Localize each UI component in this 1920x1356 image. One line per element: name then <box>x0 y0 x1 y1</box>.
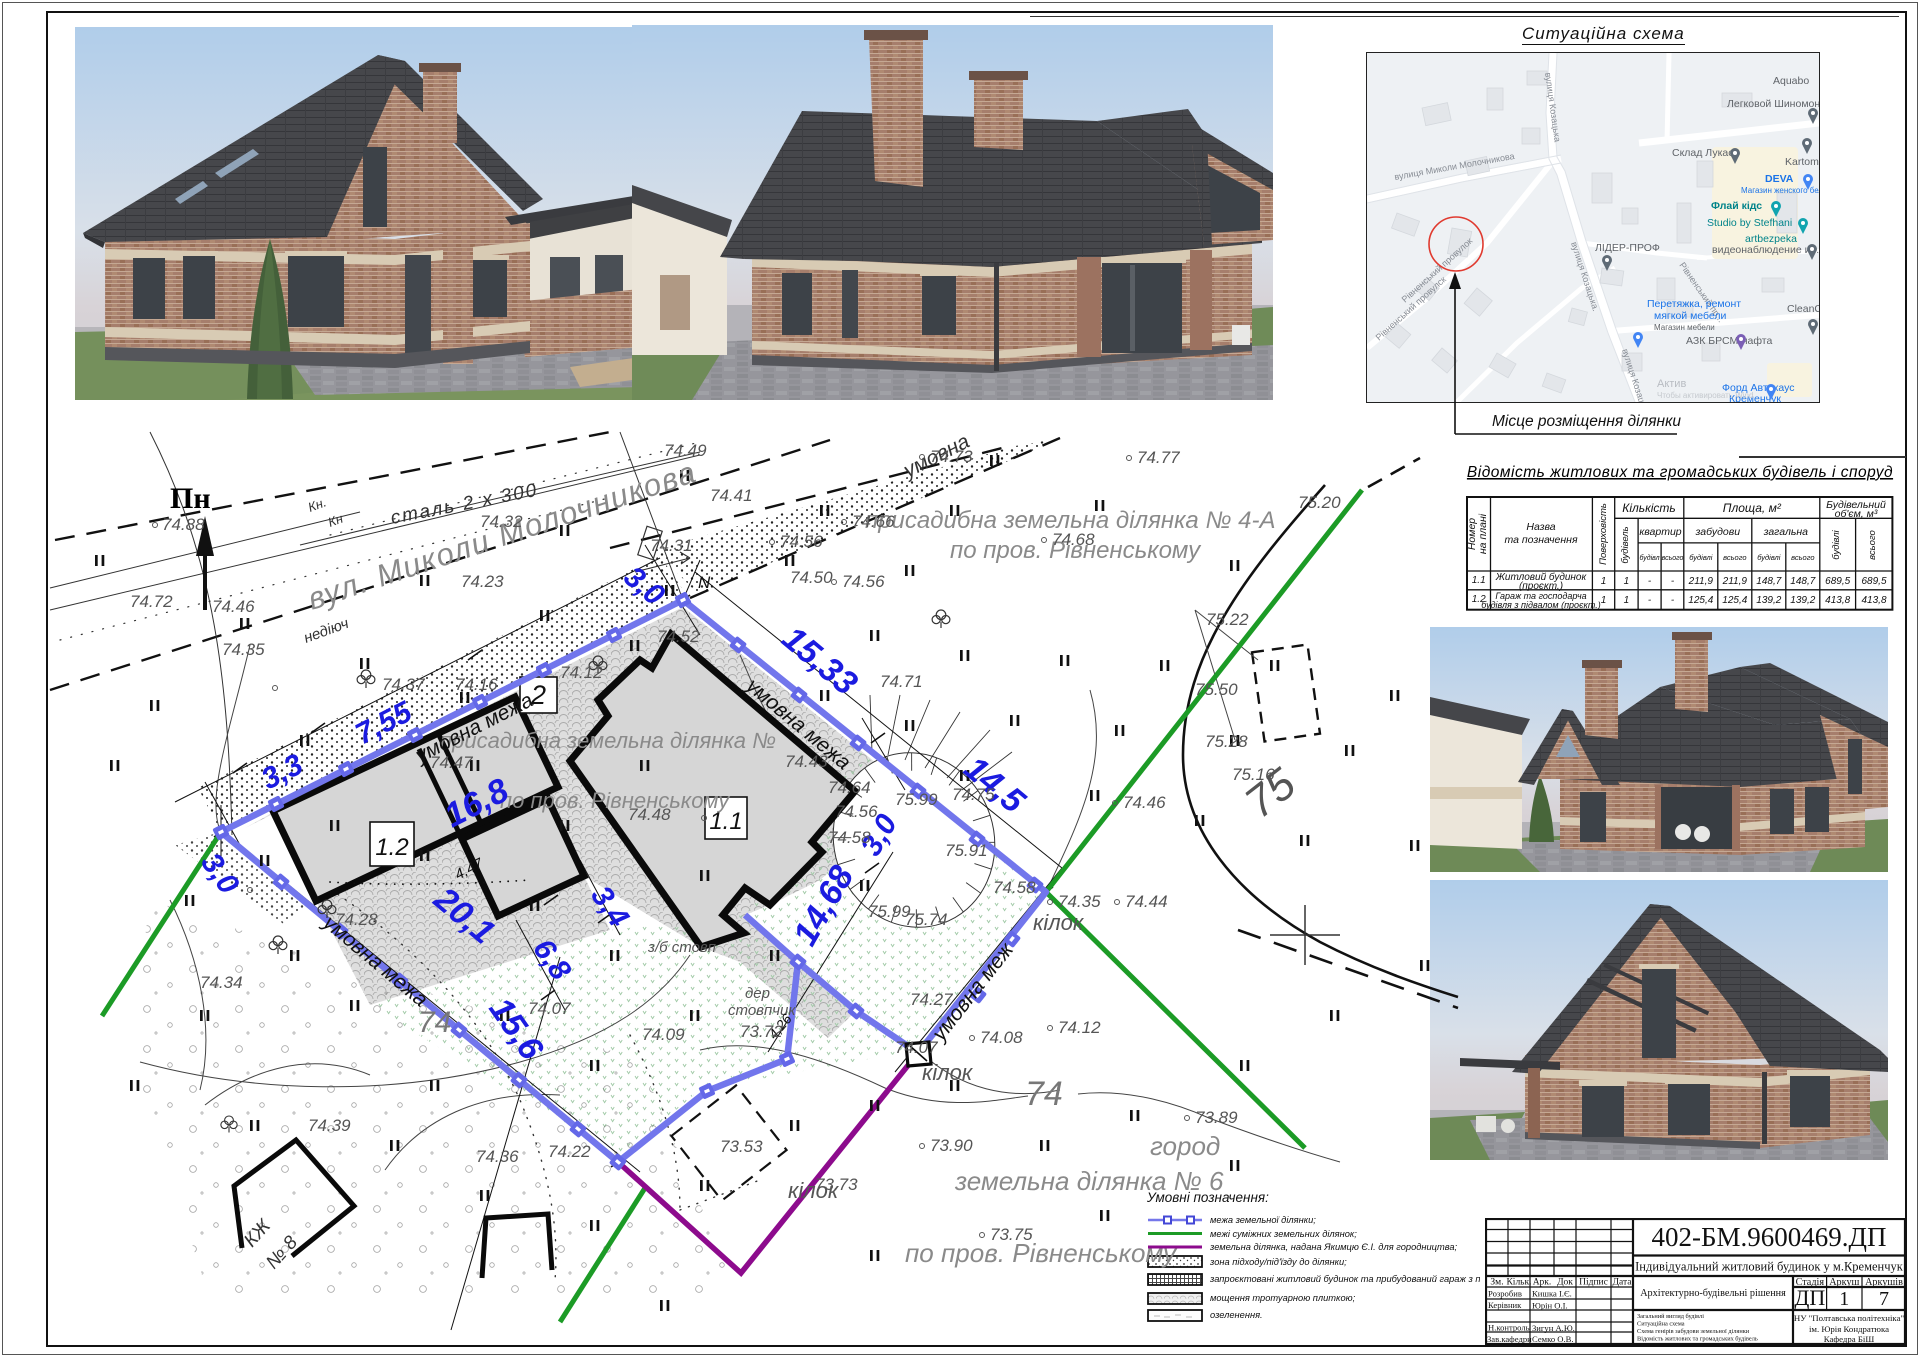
svg-text:74.34: 74.34 <box>200 973 243 992</box>
svg-text:видеонаблюдение и...: видеонаблюдение и... <box>1712 244 1819 256</box>
svg-text:Назва: Назва <box>1526 521 1555 533</box>
svg-text:73.75: 73.75 <box>990 1225 1033 1244</box>
svg-text:73.72: 73.72 <box>740 1022 783 1041</box>
svg-text:Загальний вигляд будівлі: Загальний вигляд будівлі <box>1637 1313 1704 1320</box>
svg-text:ЛІДЕР-ПРОФ: ЛІДЕР-ПРОФ <box>1595 242 1660 254</box>
svg-text:Відомість житлових та громадсь: Відомість житлових та громадських будіве… <box>1467 464 1893 481</box>
svg-text:148,7: 148,7 <box>1790 576 1815 587</box>
svg-text:74.41: 74.41 <box>710 486 753 505</box>
svg-text:211,9: 211,9 <box>1722 576 1748 587</box>
svg-text:НУ "Полтавська політехніка": НУ "Полтавська політехніка" <box>1794 1313 1905 1323</box>
svg-text:DEVA: DEVA <box>1765 173 1794 185</box>
svg-text:74.50: 74.50 <box>790 568 833 587</box>
svg-text:74.46: 74.46 <box>1123 793 1166 812</box>
svg-text:1: 1 <box>1624 576 1630 587</box>
svg-text:74.37: 74.37 <box>382 675 425 694</box>
svg-text:74.12: 74.12 <box>560 663 603 682</box>
svg-text:75.50: 75.50 <box>1195 680 1238 699</box>
svg-text:75.99: 75.99 <box>895 790 938 809</box>
svg-text:689,5: 689,5 <box>1825 576 1850 587</box>
svg-text:всього: всього <box>1867 530 1878 560</box>
svg-text:75.16: 75.16 <box>1232 765 1275 784</box>
svg-text:73.73: 73.73 <box>815 1175 858 1194</box>
svg-text:Семко О.В.: Семко О.В. <box>1532 1334 1574 1344</box>
svg-text:74.75: 74.75 <box>952 785 995 804</box>
svg-text:Кафедра БіШ: Кафедра БіШ <box>1824 1334 1875 1344</box>
svg-text:АЗК БРСМ-нафта: АЗК БРСМ-нафта <box>1686 335 1772 347</box>
svg-text:74.58: 74.58 <box>828 828 871 847</box>
svg-text:та позначення: та позначення <box>1504 534 1578 546</box>
svg-text:Н.контроль: Н.контроль <box>1488 1323 1530 1333</box>
svg-text:недіюч: недіюч <box>302 615 352 647</box>
svg-text:74.43: 74.43 <box>785 752 828 771</box>
svg-text:74.16: 74.16 <box>455 675 498 694</box>
svg-text:139,2: 139,2 <box>1756 595 1781 606</box>
svg-text:будівлі: будівлі <box>1831 529 1842 559</box>
svg-text:74.56: 74.56 <box>835 802 878 821</box>
svg-text:413,8: 413,8 <box>1825 595 1850 606</box>
svg-text:кілок: кілок <box>1033 910 1085 935</box>
svg-text:74.72: 74.72 <box>130 592 173 611</box>
svg-text:Поверховість: Поверховість <box>1598 503 1609 565</box>
svg-text:город: город <box>1150 1131 1220 1161</box>
svg-text:74.77: 74.77 <box>1137 448 1180 467</box>
svg-text:125,4: 125,4 <box>1722 595 1747 606</box>
svg-text:74.49: 74.49 <box>664 441 707 460</box>
svg-text:74.09: 74.09 <box>642 1025 685 1044</box>
svg-text:74: 74 <box>1025 1075 1063 1113</box>
svg-text:Архітектурно-будівельні рішенн: Архітектурно-будівельні рішення <box>1640 1288 1786 1299</box>
svg-text:74.66: 74.66 <box>852 512 895 531</box>
svg-text:1: 1 <box>1601 595 1607 606</box>
svg-text:75.74: 75.74 <box>905 910 948 929</box>
svg-text:74.08: 74.08 <box>980 1028 1023 1047</box>
svg-text:Підпис: Підпис <box>1579 1278 1608 1288</box>
svg-text:Кількість: Кількість <box>1622 501 1675 515</box>
svg-text:Зм.: Зм. <box>1490 1278 1503 1288</box>
svg-text:15,33: 15,33 <box>775 619 865 703</box>
svg-text:Ситуаційна схема: Ситуаційна схема <box>1637 1321 1685 1328</box>
svg-text:квартир: квартир <box>1639 526 1681 538</box>
svg-text:74.47: 74.47 <box>430 753 473 772</box>
svg-text:Studio by Stefhani: Studio by Stefhani <box>1707 217 1792 229</box>
svg-text:1: 1 <box>1839 1288 1849 1310</box>
svg-text:402-БМ.9600469.ДП: 402-БМ.9600469.ДП <box>1652 1222 1887 1252</box>
svg-text:будівля з підвалом (проєкт.): будівля з підвалом (проєкт.) <box>1481 600 1601 610</box>
svg-text:Місце розміщення ділянки: Місце розміщення ділянки <box>1492 413 1681 430</box>
svg-text:75.22: 75.22 <box>1206 610 1249 629</box>
svg-text:Індивідуальний житловий будино: Індивідуальний житловий будинок у м.Крем… <box>1635 1260 1904 1274</box>
svg-text:всього: всього <box>1662 555 1684 562</box>
svg-text:Зав.кафедри: Зав.кафедри <box>1487 1334 1532 1344</box>
svg-text:74.56: 74.56 <box>842 572 885 591</box>
svg-text:74.56: 74.56 <box>780 532 823 551</box>
svg-text:148,7: 148,7 <box>1756 576 1781 587</box>
svg-text:Флай кідс: Флай кідс <box>1711 200 1762 212</box>
svg-text:73.90: 73.90 <box>930 1136 973 1155</box>
svg-text:74: 74 <box>418 1006 451 1039</box>
svg-text:кілок: кілок <box>922 1060 974 1085</box>
svg-text:74.27: 74.27 <box>910 990 953 1009</box>
svg-text:73.89: 73.89 <box>1195 1108 1238 1127</box>
svg-text:74.07: 74.07 <box>528 999 571 1018</box>
svg-text:Кишка І.Є.: Кишка І.Є. <box>1532 1289 1572 1299</box>
svg-text:будівл: будівл <box>1639 554 1659 562</box>
svg-text:Схема генірів забудови земельн: Схема генірів забудови земельної ділянки <box>1637 1328 1750 1335</box>
svg-text:Легковой Шиномонт: Легковой Шиномонт <box>1727 98 1820 110</box>
svg-text:ДП: ДП <box>1794 1285 1825 1310</box>
svg-text:ім. Юрія Кондратюка: ім. Юрія Кондратюка <box>1809 1324 1889 1334</box>
svg-text:з/б стовп: з/б стовп <box>647 939 716 956</box>
svg-text:1: 1 <box>1601 576 1607 587</box>
svg-text:75.28: 75.28 <box>1205 732 1248 751</box>
svg-text:Кн: Кн <box>326 511 345 530</box>
svg-text:Арк.: Арк. <box>1533 1278 1552 1288</box>
svg-text:Зигун А.Ю.: Зигун А.Ю. <box>1532 1323 1575 1333</box>
svg-text:74.07: 74.07 <box>895 1038 938 1057</box>
svg-text:1.1: 1.1 <box>1472 575 1486 586</box>
svg-text:74.48: 74.48 <box>628 805 671 824</box>
svg-text:74.36: 74.36 <box>476 1147 519 1166</box>
svg-text:Розробив: Розробив <box>1488 1289 1522 1299</box>
svg-text:Аркушів: Аркушів <box>1865 1277 1903 1288</box>
svg-text:-: - <box>1648 595 1652 606</box>
svg-text:74.88: 74.88 <box>162 515 205 534</box>
svg-text:125,4: 125,4 <box>1688 595 1713 606</box>
svg-text:Аркуш: Аркуш <box>1829 1277 1859 1288</box>
svg-text:дер: дер <box>745 985 770 1002</box>
svg-text:413,8: 413,8 <box>1861 595 1886 606</box>
svg-text:Дата: Дата <box>1613 1278 1633 1288</box>
svg-text:на плані: на плані <box>1477 513 1489 554</box>
svg-text:74.31: 74.31 <box>650 536 693 555</box>
svg-text:75.20: 75.20 <box>1298 493 1341 512</box>
svg-text:будівлі: будівлі <box>1689 553 1713 562</box>
svg-text:по пров. Рівненському: по пров. Рівненському <box>905 1238 1178 1268</box>
svg-text:Aquabo: Aquabo <box>1773 75 1809 87</box>
svg-text:загальна: загальна <box>1763 526 1809 538</box>
svg-text:Кн.: Кн. <box>306 494 328 514</box>
svg-text:73.53: 73.53 <box>720 1137 763 1156</box>
svg-text:211,9: 211,9 <box>1688 576 1714 587</box>
svg-text:74.58: 74.58 <box>993 878 1036 897</box>
svg-text:Склад Лукас: Склад Лукас <box>1672 147 1733 159</box>
svg-text:74.52: 74.52 <box>657 627 700 646</box>
svg-text:74.46: 74.46 <box>212 597 255 616</box>
svg-text:забудови: забудови <box>1695 526 1741 538</box>
svg-text:-: - <box>1671 576 1675 587</box>
svg-text:будівлі: будівлі <box>1757 553 1781 562</box>
svg-text:Площа, м²: Площа, м² <box>1723 501 1782 515</box>
svg-text:Kartoman: Kartoman <box>1785 156 1820 168</box>
svg-text:74.64: 74.64 <box>828 778 871 797</box>
svg-text:689,5: 689,5 <box>1861 576 1886 587</box>
svg-text:74.71: 74.71 <box>880 672 923 691</box>
svg-text:N: N <box>698 573 711 592</box>
svg-text:74.22: 74.22 <box>548 1142 591 1161</box>
svg-text:74.35: 74.35 <box>1058 892 1101 911</box>
svg-text:-: - <box>1648 576 1652 587</box>
svg-text:74.44: 74.44 <box>1125 892 1168 911</box>
svg-text:всього: всього <box>1791 553 1814 562</box>
svg-text:1.2: 1.2 <box>375 834 408 861</box>
svg-text:74.23: 74.23 <box>461 572 504 591</box>
svg-text:75.91: 75.91 <box>945 841 988 860</box>
svg-text:139,2: 139,2 <box>1790 595 1815 606</box>
svg-text:74.68: 74.68 <box>1052 530 1095 549</box>
svg-text:7: 7 <box>1879 1288 1889 1310</box>
svg-text:Юрін О.І.: Юрін О.І. <box>1532 1301 1568 1311</box>
svg-text:74.28: 74.28 <box>335 910 378 929</box>
svg-text:1: 1 <box>1624 595 1630 606</box>
svg-text:74.32: 74.32 <box>480 512 523 531</box>
svg-text:Керівник: Керівник <box>1488 1300 1522 1310</box>
svg-text:по пров. Рівненському: по пров. Рівненському <box>500 788 731 813</box>
svg-text:74.12: 74.12 <box>1058 1018 1101 1037</box>
svg-text:всього: всього <box>1723 553 1746 562</box>
svg-text:-: - <box>1671 595 1675 606</box>
svg-text:74.39: 74.39 <box>308 1116 351 1135</box>
svg-text:74.73: 74.73 <box>930 447 973 466</box>
svg-text:Кільк.: Кільк. <box>1506 1278 1531 1288</box>
svg-text:CleanC: CleanC <box>1787 303 1820 315</box>
svg-text:земельна ділянка № 6: земельна ділянка № 6 <box>954 1166 1224 1196</box>
svg-text:Док: Док <box>1557 1278 1573 1288</box>
svg-text:Пн: Пн <box>170 482 211 515</box>
svg-text:74.35: 74.35 <box>222 640 265 659</box>
svg-text:об'єм, м³: об'єм, м³ <box>1835 508 1878 520</box>
svg-text:будівель: будівель <box>1620 526 1631 563</box>
svg-text:Відомість житлових та громадсь: Відомість житлових та громадських будіве… <box>1637 1336 1758 1343</box>
